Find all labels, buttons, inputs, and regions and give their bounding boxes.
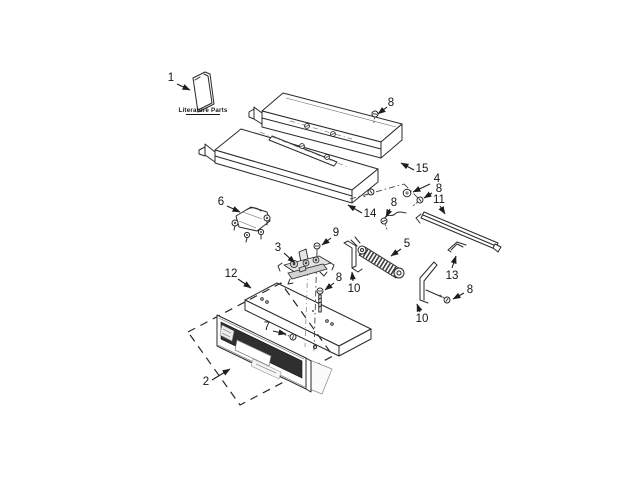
svg-text:8: 8	[388, 97, 394, 109]
screw-icon	[411, 196, 424, 209]
panel-screw-icon	[325, 155, 330, 160]
callout-screw-control-bottom: 8	[325, 272, 342, 290]
svg-text:8: 8	[391, 197, 397, 209]
svg-text:9: 9	[333, 227, 339, 239]
screw-icon-9	[314, 243, 320, 256]
callout-screw-control-top: 9	[322, 227, 339, 245]
exploded-parts-diagram: Literature Parts	[0, 0, 640, 480]
svg-text:5: 5	[404, 238, 410, 250]
svg-text:8: 8	[467, 284, 473, 296]
literature-pack: Literature Parts	[179, 72, 228, 115]
svg-text:1: 1	[168, 72, 174, 84]
callout-support-rail: 11	[433, 194, 445, 214]
element-bracket-right	[420, 262, 442, 303]
panel-screw-icon	[331, 132, 336, 137]
callout-screw-upper-panel: 8	[378, 97, 394, 114]
callout-shield-panel: 12	[225, 268, 251, 288]
spacer-icon	[403, 189, 411, 197]
callout-upper-rear-panel: 15	[401, 163, 428, 175]
element-bracket-left	[344, 241, 362, 272]
svg-text:7: 7	[264, 321, 270, 333]
callout-lower-rear-panel: 14	[348, 205, 377, 220]
callout-end-bracket: 13	[446, 256, 459, 282]
literature-label: Literature Parts	[179, 107, 228, 114]
callout-bracket-right: 10	[416, 304, 429, 325]
svg-text:10: 10	[348, 283, 361, 295]
bracket-screw-icon	[437, 292, 451, 304]
callout-screw-bracket: 8	[453, 284, 473, 299]
callout-element: 5	[391, 238, 410, 256]
callout-literature-pack: 1	[168, 72, 190, 90]
ground-screw-icon	[380, 217, 390, 231]
svg-text:8: 8	[336, 272, 342, 284]
svg-text:2: 2	[203, 376, 209, 388]
end-bracket	[448, 242, 466, 252]
diagram-canvas: Literature Parts	[0, 0, 640, 480]
panel-screw-icon	[305, 124, 310, 129]
svg-text:11: 11	[433, 194, 445, 206]
svg-text:14: 14	[364, 208, 377, 220]
svg-text:10: 10	[416, 313, 429, 325]
svg-text:3: 3	[275, 242, 281, 254]
svg-text:13: 13	[446, 270, 459, 282]
svg-text:6: 6	[218, 196, 224, 208]
svg-text:12: 12	[225, 268, 238, 280]
latch-assembly	[232, 207, 270, 242]
callout-latch-assembly: 6	[218, 196, 240, 212]
panel-screw-icon	[300, 144, 305, 149]
svg-text:15: 15	[416, 163, 429, 175]
callout-bracket-left: 10	[348, 272, 361, 295]
support-rail	[416, 212, 501, 252]
callout-control-assembly: 3	[275, 242, 295, 263]
